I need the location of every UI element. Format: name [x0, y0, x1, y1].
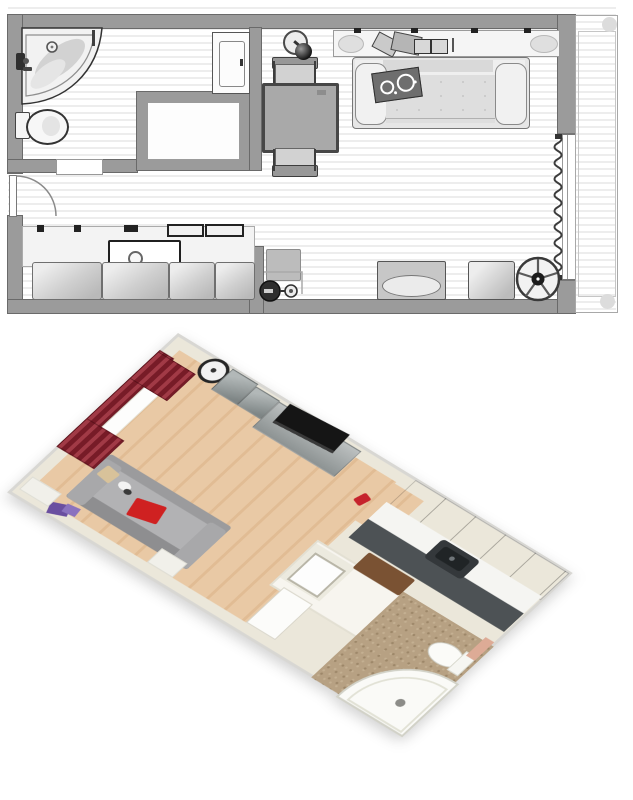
toilet-bowl-shade	[42, 116, 60, 136]
chair-bottom-rail-l	[273, 149, 275, 171]
chair-bottom[interactable]	[272, 146, 318, 177]
counter-item-3	[124, 225, 138, 232]
toilet[interactable]	[26, 109, 69, 145]
shelf-stick	[452, 38, 454, 52]
chair-top-rail-r	[314, 61, 316, 83]
chair-top[interactable]	[272, 55, 318, 85]
shelf-bracket-4	[524, 28, 531, 33]
vacuum-detail	[264, 289, 273, 293]
sofa-front-line	[386, 118, 495, 119]
design-canvas	[0, 0, 633, 800]
pillow-dot-1	[394, 91, 397, 94]
balcony-inner-outline	[578, 31, 616, 297]
entrance-door-swing-arc	[8, 168, 70, 222]
vacuum-wheel-hub	[289, 289, 293, 293]
sofa-armrest-right	[495, 63, 527, 125]
wall-right-upper	[558, 15, 575, 133]
wall-shelf[interactable]	[333, 30, 560, 57]
balcony[interactable]	[575, 15, 618, 313]
shelf-bracket-2	[411, 28, 418, 33]
fan[interactable]	[514, 255, 562, 303]
wall-hook	[92, 30, 95, 46]
sofa[interactable]	[352, 57, 530, 129]
chair-top-rail-l	[273, 61, 275, 83]
chair-bottom-rail-r	[314, 149, 316, 171]
wall-vertical	[250, 28, 261, 170]
table-corner-mark	[317, 90, 326, 95]
wardrobe-cabinet[interactable]	[212, 32, 250, 94]
wall-bathroom-b	[100, 160, 137, 172]
counter-item-5	[205, 224, 244, 237]
dining-table[interactable]	[262, 83, 339, 153]
base-cabinet-3[interactable]	[169, 262, 215, 300]
chair-bottom-backrest	[272, 165, 318, 177]
counter-item-2	[74, 225, 81, 232]
window-pane-line-2	[567, 135, 568, 279]
shelf-box	[414, 39, 448, 54]
counter-item-4	[167, 224, 204, 237]
pillow-dot-2	[414, 80, 417, 83]
curtain-end-top	[555, 134, 562, 139]
wall-left-lower	[8, 216, 22, 313]
tub-drain-dot	[51, 46, 54, 49]
tub-faucet-knob	[23, 58, 29, 64]
balcony-corner-blob-top	[602, 17, 617, 32]
floor-plan-view[interactable]	[0, 0, 633, 322]
shelf-bracket-1	[354, 28, 361, 33]
base-cabinet-4[interactable]	[215, 262, 255, 300]
pillow-ring-1	[379, 79, 395, 95]
pet-bed[interactable]	[377, 261, 446, 300]
vacuum-cleaner[interactable]	[256, 268, 306, 306]
chair-top-seat	[275, 64, 315, 85]
view-3d[interactable]	[7, 333, 573, 732]
pet-bed-dish	[382, 275, 441, 297]
shelf-bracket-3	[471, 28, 478, 33]
counter-item-1	[37, 225, 44, 232]
shelf-box-divider	[430, 40, 432, 53]
closet-interior	[148, 103, 239, 159]
pouf[interactable]	[468, 261, 515, 300]
base-cabinet-1[interactable]	[32, 262, 102, 300]
wardrobe-handle	[240, 59, 243, 66]
fan-hub-dot	[536, 277, 539, 280]
wall-clock-center	[209, 367, 217, 373]
pillow-ring-2	[396, 73, 416, 93]
shelf-bowl	[530, 35, 558, 53]
balcony-corner-blob-bottom	[600, 294, 615, 309]
base-cabinet-2[interactable]	[102, 262, 169, 300]
shelf-plant	[338, 35, 364, 53]
floor-lamp-base	[295, 43, 312, 60]
tub-spout	[23, 67, 32, 71]
